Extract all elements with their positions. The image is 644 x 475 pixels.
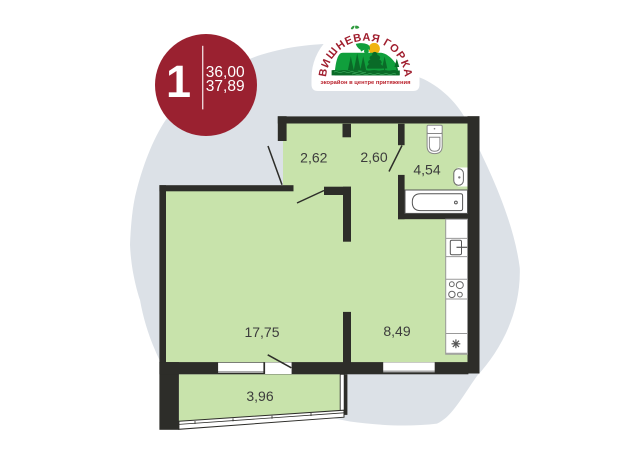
svg-text:экорайон в центре притяжения: экорайон в центре притяжения	[321, 79, 411, 86]
svg-text:1: 1	[166, 56, 191, 107]
svg-text:4,54: 4,54	[413, 162, 440, 178]
svg-text:А: А	[362, 32, 370, 44]
svg-text:3,96: 3,96	[246, 388, 273, 404]
svg-text:37,89: 37,89	[206, 78, 245, 95]
svg-text:2,62: 2,62	[300, 149, 327, 165]
svg-text:2,60: 2,60	[360, 149, 387, 165]
svg-text:8,49: 8,49	[383, 323, 410, 339]
svg-text:17,75: 17,75	[244, 324, 279, 340]
